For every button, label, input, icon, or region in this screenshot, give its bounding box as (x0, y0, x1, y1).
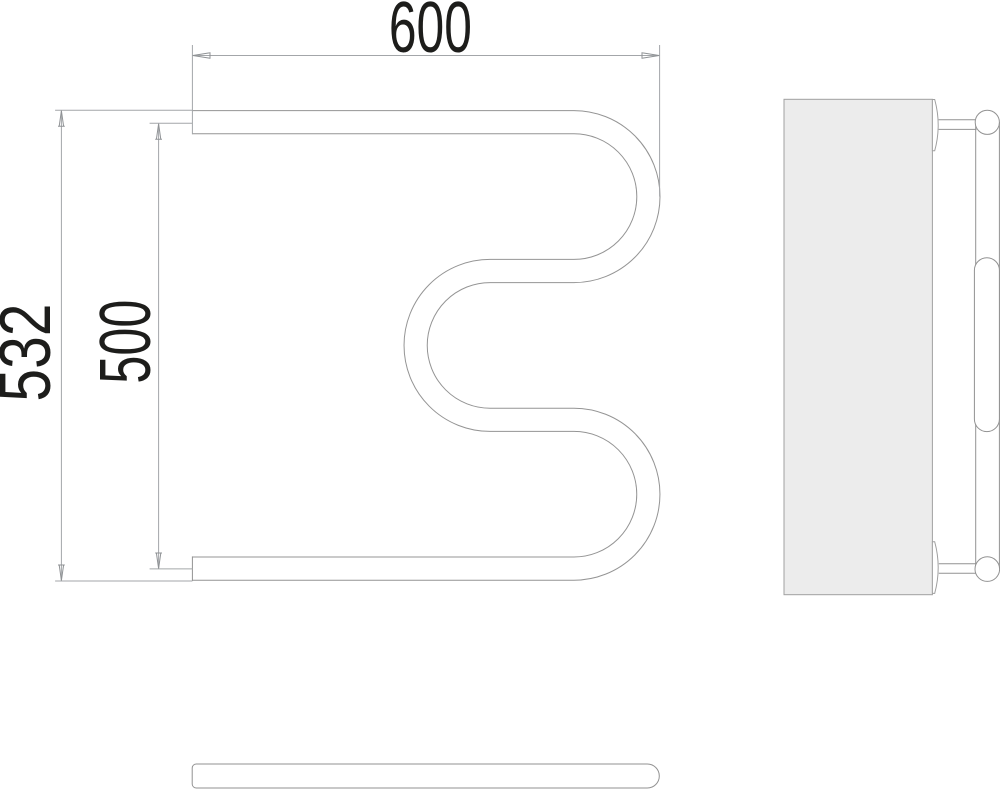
svg-text:500: 500 (86, 300, 166, 384)
svg-text:532: 532 (0, 304, 66, 402)
svg-text:600: 600 (389, 0, 472, 68)
